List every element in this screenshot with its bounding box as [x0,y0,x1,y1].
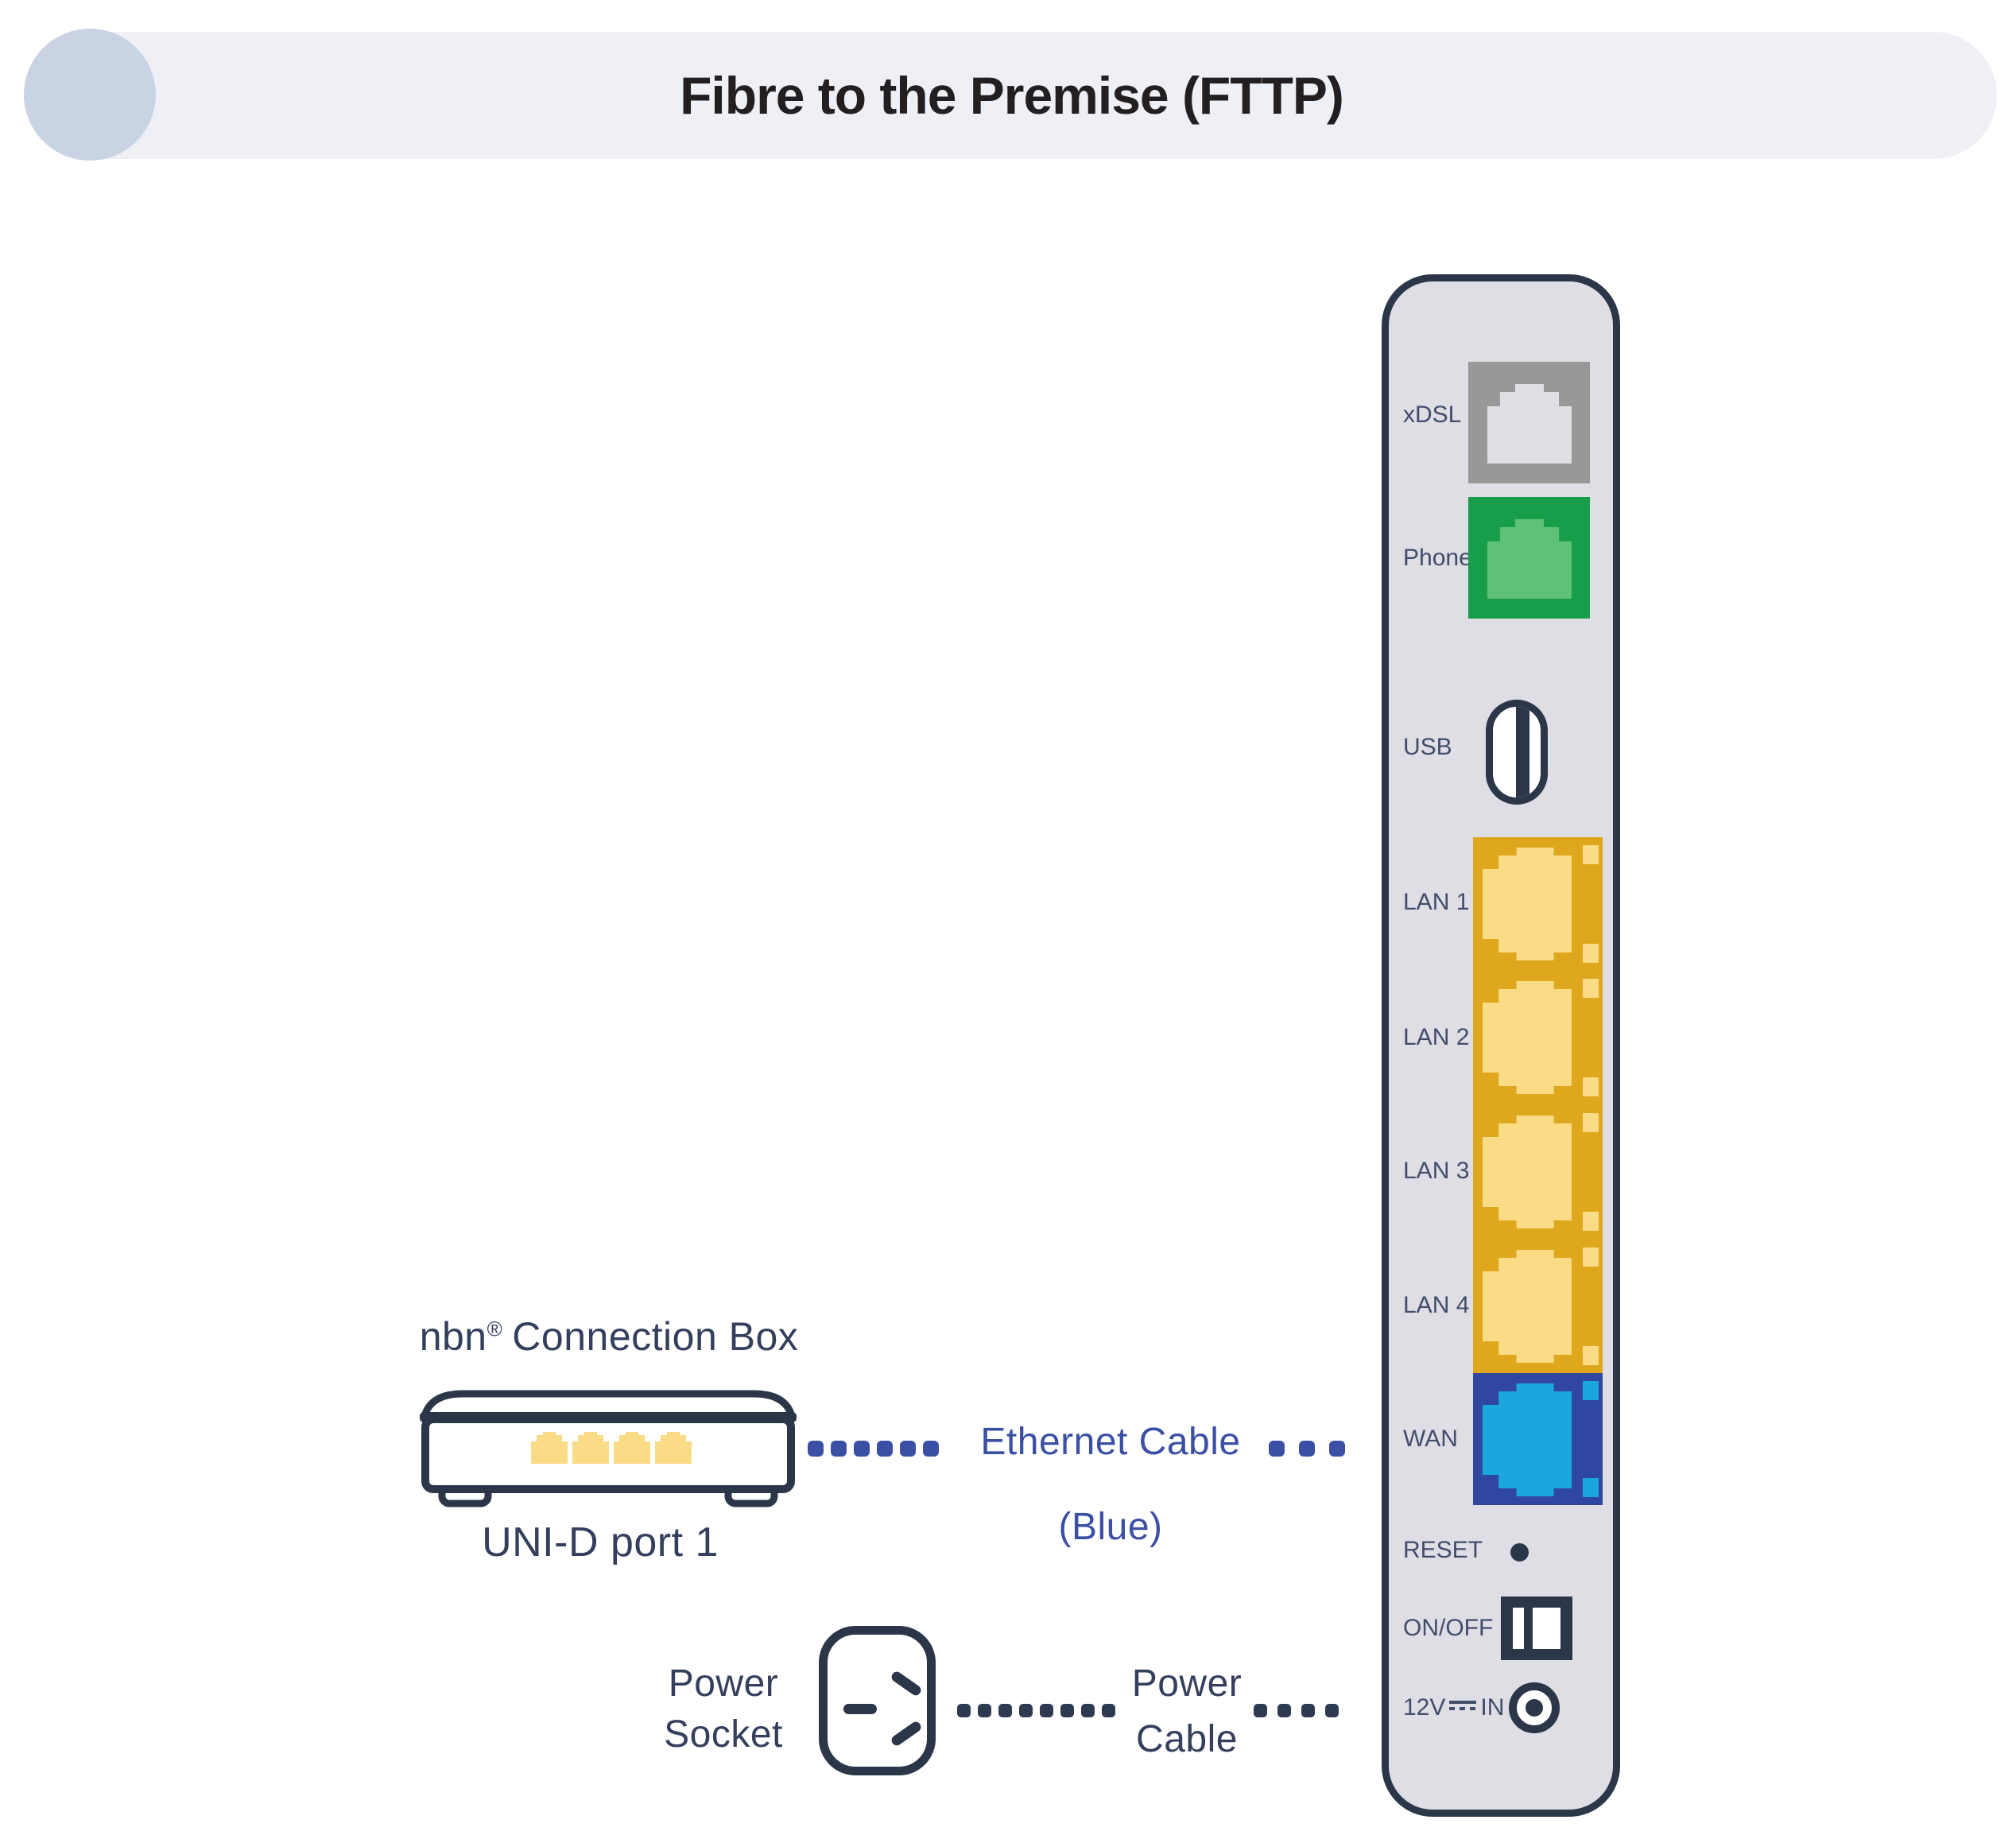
usb-port-label: USB [1403,734,1452,761]
cable-dot [978,1704,991,1717]
jack-pin [1526,1699,1543,1717]
power-cable-dots-right [1254,1704,1339,1717]
rj45-jack-icon [1483,1383,1572,1496]
lan3-port [1473,1105,1603,1239]
power-socket-label: Power Socket [604,1659,843,1760]
switch-slot [1513,1608,1524,1649]
rj45-jack-icon [1483,1250,1572,1363]
cable-dot [831,1441,847,1457]
socket-slot-icon [890,1670,923,1697]
cable-dot [900,1441,916,1457]
xdsl-port [1468,362,1590,483]
port-pip [1583,845,1599,864]
port-pip [1583,944,1599,963]
ethernet-cable-colour-label: (Blue) [954,1505,1267,1549]
cable-dot [1040,1704,1053,1717]
rj45-jack-icon [1483,981,1572,1094]
cable-dot [1254,1704,1267,1717]
wan-port [1473,1373,1603,1505]
ethernet-cable-label: Ethernet Cable [954,1420,1267,1464]
ethernet-cable-dots-left [808,1441,939,1457]
lan4-port-label: LAN 4 [1403,1292,1469,1319]
dc-barrel-jack-icon [1509,1682,1560,1733]
rj45-jack-icon [1483,1115,1572,1228]
lan4-port [1473,1240,1603,1373]
port-pip [1583,1478,1599,1497]
socket-slot-icon [890,1720,923,1748]
rj45-jack-icon [1483,848,1572,960]
cable-dot [808,1441,824,1457]
port-pip [1583,979,1599,998]
power-cable-line2: Cable [1068,1712,1306,1767]
cable-dot [998,1704,1012,1717]
registered-mark: ® [487,1317,503,1340]
dc-in-label: 12VIN [1403,1694,1504,1721]
cable-dot [1277,1704,1291,1717]
cable-dot [957,1704,971,1717]
uni-d-port-label: UNI-D port 1 [413,1519,787,1566]
power-switch-icon [1501,1597,1572,1660]
port-pip [1583,1247,1599,1267]
wan-port-label: WAN [1403,1426,1458,1453]
lan-port-block [1473,837,1603,1373]
lan1-port-label: LAN 1 [1403,889,1469,916]
lan2-port-label: LAN 2 [1403,1024,1469,1051]
dc-in-label-suffix: IN [1480,1694,1504,1721]
usb-port [1486,700,1548,805]
xdsl-port-label: xDSL [1403,402,1461,429]
lan2-port [1473,971,1603,1104]
fttp-diagram: Fibre to the Premise (FTTP) nbn®Connecti… [0,0,2016,1839]
reset-pinhole-icon [1510,1543,1529,1562]
cable-dot [1301,1704,1315,1717]
port-pip [1583,1113,1599,1132]
lan1-port [1473,837,1603,971]
port-pip [1583,1212,1599,1231]
phone-port [1468,497,1590,619]
cable-dot [854,1441,870,1457]
cable-dot [1329,1441,1345,1457]
rj-jack-icon [1487,519,1572,599]
cable-dot [1019,1704,1033,1717]
usb-slot-icon [1516,707,1529,797]
dc-symbol-icon [1449,1701,1476,1713]
nbn-brand: nbn [420,1314,487,1359]
reset-label: RESET [1403,1537,1483,1564]
power-socket-icon [819,1626,936,1775]
nbn-connection-box-label: nbn®Connection Box [315,1313,903,1360]
cable-dot [923,1441,939,1457]
page-title: Fibre to the Premise (FTTP) [26,32,1997,159]
switch-rocker [1533,1608,1560,1649]
dc-in-label-prefix: 12V [1403,1694,1445,1721]
phone-port-label: Phone [1403,545,1472,572]
cable-dot [1269,1441,1285,1457]
port-pip [1583,1346,1599,1365]
lan3-port-label: LAN 3 [1403,1158,1469,1185]
onoff-label: ON/OFF [1403,1615,1493,1642]
cable-dot [877,1441,893,1457]
nbn-label-rest: Connection Box [512,1314,798,1359]
cable-dot [1299,1441,1315,1457]
power-socket-line1: Power [604,1659,843,1709]
socket-slot-icon [843,1704,877,1714]
cable-dot [1325,1704,1339,1717]
rj-jack-icon [1487,384,1572,464]
router-back-panel: xDSL Phone USB LAN 1 LAN 2 LAN 3 LAN 4 [1382,274,1620,1817]
ethernet-cable-dots-right [1269,1441,1345,1457]
power-socket-line2: Socket [604,1709,843,1760]
port-pip [1583,1077,1599,1096]
port-pip [1583,1381,1599,1400]
wan-port-cell [1473,1373,1603,1505]
